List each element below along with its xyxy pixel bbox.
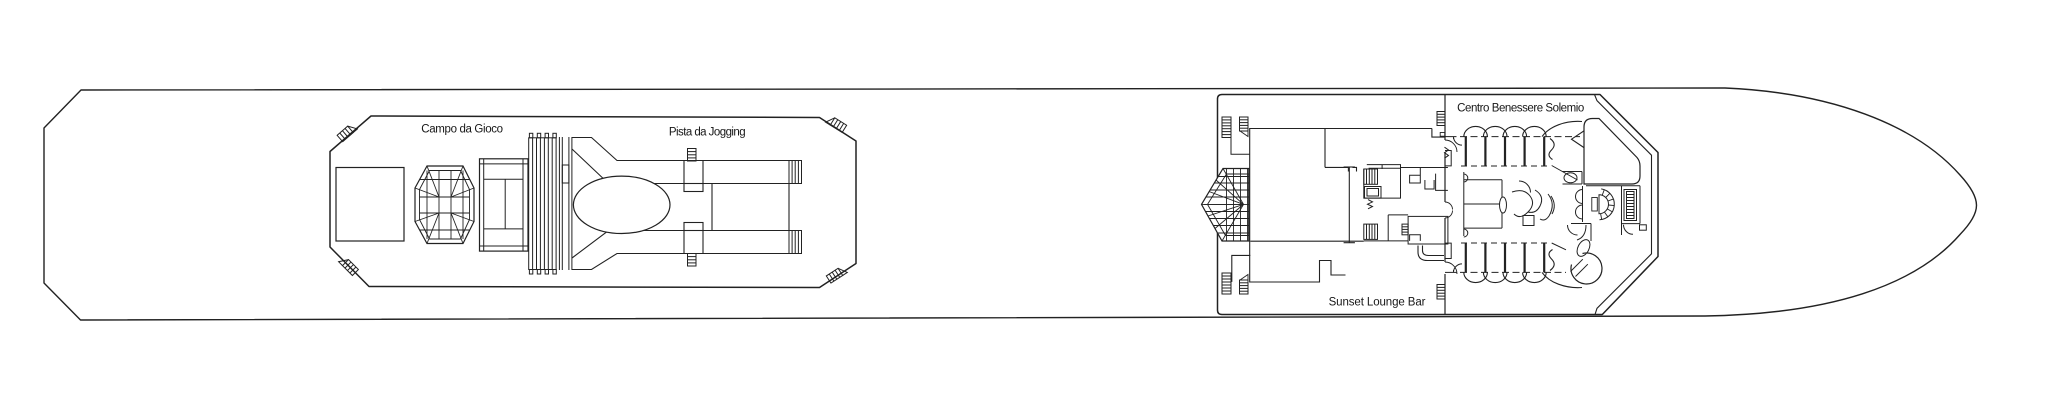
svg-text:Centro Benessere Solemio: Centro Benessere Solemio	[1457, 103, 1584, 115]
svg-text:Campo da Gioco: Campo da Gioco	[421, 124, 502, 136]
svg-text:Sunset Lounge Bar: Sunset Lounge Bar	[1329, 297, 1426, 309]
svg-text:Pista da Jogging: Pista da Jogging	[669, 127, 745, 139]
